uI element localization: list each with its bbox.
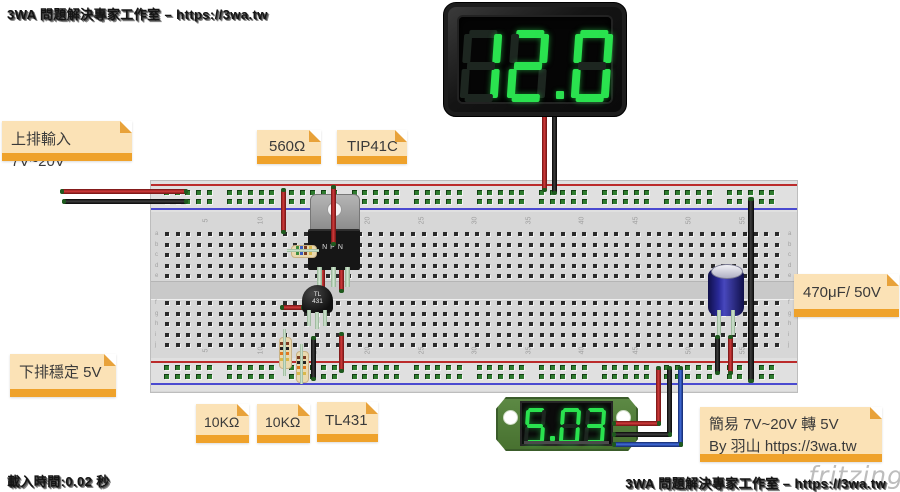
breadboard-hole <box>208 264 212 268</box>
transistor-leg <box>317 267 322 287</box>
segment-b <box>541 410 546 424</box>
breadboard-hole <box>561 253 565 257</box>
breadboard-hole <box>272 243 276 247</box>
breadboard-hole <box>411 343 415 347</box>
breadboard-rail-hole <box>602 365 607 370</box>
breadboard-hole <box>647 301 651 305</box>
breadboard-hole <box>721 243 725 247</box>
segment-f <box>525 410 530 424</box>
breadboard-hole <box>197 343 201 347</box>
column-label: 5 <box>202 349 209 353</box>
breadboard-hole <box>775 322 779 326</box>
breadboard-hole <box>197 264 201 268</box>
breadboard-rail-hole <box>394 190 399 195</box>
breadboard-hole <box>529 333 533 337</box>
breadboard-hole <box>272 232 276 236</box>
breadboard-hole <box>304 333 308 337</box>
breadboard-hole <box>497 253 501 257</box>
breadboard-rail-hole <box>759 199 764 204</box>
breadboard-hole <box>486 232 490 236</box>
breadboard-hole <box>219 301 223 305</box>
breadboard-hole <box>657 253 661 257</box>
breadboard-hole <box>700 274 704 278</box>
breadboard-hole <box>272 333 276 337</box>
breadboard-hole <box>293 333 297 337</box>
breadboard-rail-hole <box>477 365 482 370</box>
breadboard-hole <box>251 243 255 247</box>
breadboard-hole <box>475 253 479 257</box>
breadboard-rail-hole <box>539 199 544 204</box>
breadboard-hole <box>176 253 180 257</box>
breadboard-hole <box>165 312 169 316</box>
breadboard-hole <box>486 274 490 278</box>
note-input-top[interactable]: 上排輸入 7V~20V <box>2 121 132 161</box>
row-label: h <box>155 321 158 327</box>
breadboard-rail-hole <box>560 199 565 204</box>
watermark-top-left: 3WA 問題解決專家工作室 – https://3wa.tw <box>7 4 268 23</box>
breadboard-hole <box>229 301 233 305</box>
breadboard-rail-hole <box>696 190 701 195</box>
breadboard-hole <box>700 333 704 337</box>
breadboard-rail-hole <box>435 190 440 195</box>
breadboard-hole <box>358 322 362 326</box>
breadboard-rail-hole <box>196 374 201 379</box>
breadboard-hole <box>197 322 201 326</box>
breadboard-hole <box>454 264 458 268</box>
breadboard-hole <box>529 274 533 278</box>
breadboard-hole <box>422 253 426 257</box>
breadboard-rail-hole <box>644 365 649 370</box>
wire-input-positive[interactable] <box>60 189 188 194</box>
segment-b <box>539 34 549 63</box>
small-voltmeter-baseline <box>524 441 609 444</box>
breadboard-hole <box>497 301 501 305</box>
breadboard-hole <box>486 264 490 268</box>
breadboard-hole <box>229 253 233 257</box>
tl431[interactable]: TL431 <box>302 285 333 327</box>
breadboard-hole <box>625 274 629 278</box>
breadboard-hole <box>219 253 223 257</box>
breadboard-hole <box>572 333 576 337</box>
wire-vm-black-v[interactable] <box>667 366 672 437</box>
breadboard-hole <box>261 312 265 316</box>
breadboard-rail-hole <box>737 365 742 370</box>
mounting-hole-icon <box>504 411 517 424</box>
breadboard-rail-hole <box>185 374 190 379</box>
breadboard-hole <box>550 333 554 337</box>
resistor-lead <box>283 329 286 376</box>
breadboard-hole <box>540 274 544 278</box>
breadboard-hole <box>197 301 201 305</box>
breadboard-rail-hole <box>248 374 253 379</box>
breadboard-rail-hole <box>269 374 274 379</box>
note-output-bottom[interactable]: 下排穩定 5V <box>10 354 116 397</box>
breadboard-rail-hole <box>623 365 628 370</box>
breadboard-hole <box>186 232 190 236</box>
breadboard-hole <box>764 253 768 257</box>
breadboard-hole <box>186 301 190 305</box>
rail-red-line <box>151 361 797 363</box>
breadboard-hole <box>379 243 383 247</box>
breadboard-hole <box>775 301 779 305</box>
breadboard-rail-hole <box>373 199 378 204</box>
breadboard-hole <box>411 322 415 326</box>
note-author[interactable]: 簡易 7V~20V 轉 5V By 羽山 https://3wa.tw <box>700 407 882 462</box>
breadboard-hole <box>540 264 544 268</box>
breadboard-hole <box>518 322 522 326</box>
breadboard-hole <box>507 274 511 278</box>
breadboard-hole <box>240 274 244 278</box>
breadboard-hole <box>689 312 693 316</box>
breadboard-rail-hole <box>707 374 712 379</box>
breadboard-hole <box>379 274 383 278</box>
breadboard-hole <box>764 343 768 347</box>
breadboard-hole <box>497 333 501 337</box>
breadboard-rail-hole <box>207 190 212 195</box>
wire-vm-red-v[interactable] <box>656 366 661 426</box>
breadboard-rail-hole <box>446 365 451 370</box>
breadboard-hole <box>700 343 704 347</box>
breadboard-rail-hole <box>414 190 419 195</box>
breadboard-hole <box>540 322 544 326</box>
breadboard-hole <box>197 253 201 257</box>
breadboard-hole <box>208 322 212 326</box>
breadboard-hole <box>550 301 554 305</box>
breadboard-hole <box>390 333 394 337</box>
breadboard-rail-hole <box>237 199 242 204</box>
breadboard-hole <box>582 243 586 247</box>
breadboard-hole <box>433 264 437 268</box>
breadboard-hole <box>251 312 255 316</box>
breadboard-rail-hole <box>519 199 524 204</box>
breadboard-hole <box>657 274 661 278</box>
large-voltmeter[interactable] <box>443 2 627 117</box>
breadboard-rail-hole <box>164 374 169 379</box>
breadboard-hole <box>486 312 490 316</box>
breadboard-hole <box>572 232 576 236</box>
digit-0 <box>559 408 582 444</box>
breadboard-hole <box>229 322 233 326</box>
breadboard-hole <box>486 343 490 347</box>
breadboard-hole <box>240 253 244 257</box>
wire-cap-to-rail-black[interactable] <box>715 335 720 375</box>
breadboard-rail-hole <box>207 365 212 370</box>
breadboard-hole <box>411 243 415 247</box>
breadboard-hole <box>582 264 586 268</box>
wire-rail-to-rowA[interactable] <box>281 188 286 234</box>
breadboard-hole <box>229 243 233 247</box>
breadboard-hole <box>186 243 190 247</box>
breadboard-rail-hole <box>685 374 690 379</box>
breadboard-hole <box>507 232 511 236</box>
breadboard-rail-hole <box>175 374 180 379</box>
breadboard-rail-hole <box>321 374 326 379</box>
breadboard-hole <box>465 243 469 247</box>
breadboard-hole <box>582 333 586 337</box>
breadboard-hole <box>486 301 490 305</box>
breadboard-hole <box>390 322 394 326</box>
resistor-560ohm[interactable] <box>287 245 319 256</box>
breadboard-hole <box>625 243 629 247</box>
breadboard-rail-hole <box>185 365 190 370</box>
breadboard-hole <box>529 322 533 326</box>
breadboard-hole <box>251 264 255 268</box>
breadboard-rail-hole <box>602 199 607 204</box>
breadboard-hole <box>208 274 212 278</box>
wire-input-negative[interactable] <box>62 199 188 204</box>
breadboard-rail-hole <box>550 374 555 379</box>
breadboard-rail-hole <box>571 190 576 195</box>
column-label: 50 <box>686 217 693 225</box>
breadboard-hole <box>443 322 447 326</box>
breadboard-hole <box>475 312 479 316</box>
breadboard-hole <box>347 301 351 305</box>
breadboard-hole <box>540 333 544 337</box>
breadboard-hole <box>679 333 683 337</box>
breadboard-hole <box>251 232 255 236</box>
breadboard-hole <box>176 243 180 247</box>
breadboard-hole <box>400 264 404 268</box>
breadboard-rail-hole <box>259 374 264 379</box>
breadboard-hole <box>454 333 458 337</box>
breadboard-hole <box>636 274 640 278</box>
breadboard-hole <box>604 232 608 236</box>
breadboard-hole <box>400 243 404 247</box>
breadboard-rail-hole <box>207 374 212 379</box>
resistor-10k-right[interactable] <box>295 344 307 384</box>
note-tl431[interactable]: TL431 <box>317 402 378 442</box>
wire-display-positive[interactable] <box>542 112 547 192</box>
breadboard-hole <box>433 243 437 247</box>
wire-vm-blue-v[interactable] <box>678 366 683 447</box>
breadboard-rail-hole <box>477 374 482 379</box>
breadboard-hole <box>400 301 404 305</box>
breadboard-hole <box>507 253 511 257</box>
segment-g <box>514 62 543 70</box>
breadboard-hole <box>732 243 736 247</box>
breadboard-hole <box>625 312 629 316</box>
breadboard-hole <box>657 243 661 247</box>
breadboard-rail-hole <box>259 190 264 195</box>
breadboard-hole <box>475 232 479 236</box>
breadboard-hole <box>604 343 608 347</box>
breadboard-hole <box>625 301 629 305</box>
breadboard-rail-hole <box>498 365 503 370</box>
row-label: i <box>788 332 789 338</box>
breadboard-rail-hole <box>602 374 607 379</box>
breadboard-hole <box>668 333 672 337</box>
breadboard-hole <box>754 232 758 236</box>
breadboard-hole <box>197 243 201 247</box>
breadboard-hole <box>486 243 490 247</box>
column-label: 50 <box>686 347 693 355</box>
breadboard-rail-hole <box>498 190 503 195</box>
breadboard-hole <box>411 264 415 268</box>
breadboard-hole <box>668 343 672 347</box>
breadboard-hole <box>390 301 394 305</box>
resistor-10k-left[interactable] <box>278 329 290 376</box>
column-label: 10 <box>258 347 265 355</box>
breadboard-hole <box>657 333 661 337</box>
wire-display-negative[interactable] <box>552 112 557 195</box>
breadboard-hole <box>454 232 458 236</box>
column-label: 40 <box>579 347 586 355</box>
row-label: f <box>788 300 790 306</box>
breadboard-rail-hole <box>696 199 701 204</box>
breadboard-hole <box>754 322 758 326</box>
breadboard-hole <box>550 232 554 236</box>
breadboard-hole <box>368 243 372 247</box>
breadboard-hole <box>326 333 330 337</box>
breadboard-hole <box>433 274 437 278</box>
column-label: 40 <box>579 217 586 225</box>
breadboard-hole <box>368 301 372 305</box>
wire-rail-to-transistor[interactable] <box>331 185 336 246</box>
note-tip41c[interactable]: TIP41C <box>337 130 407 164</box>
breadboard-hole <box>582 301 586 305</box>
breadboard-hole <box>219 322 223 326</box>
breadboard-hole <box>433 301 437 305</box>
note-10k-left[interactable]: 10KΩ <box>196 404 249 443</box>
column-label: 30 <box>472 347 479 355</box>
breadboard-rail-hole <box>519 190 524 195</box>
breadboard-hole <box>272 301 276 305</box>
breadboard-rail-hole <box>425 199 430 204</box>
wire-feedback-black[interactable] <box>311 336 316 381</box>
breadboard-rail-hole <box>414 199 419 204</box>
breadboard-hole <box>700 322 704 326</box>
breadboard-hole <box>475 301 479 305</box>
breadboard-hole <box>593 274 597 278</box>
breadboard-hole <box>293 264 297 268</box>
breadboard-hole <box>336 301 340 305</box>
wire-cap-to-rail-red[interactable] <box>728 335 733 375</box>
segment-b <box>492 34 502 63</box>
breadboard-hole <box>721 343 725 347</box>
breadboard-hole <box>657 264 661 268</box>
wire-vm-black-h[interactable] <box>612 432 672 437</box>
breadboard-hole <box>636 301 640 305</box>
breadboard-hole <box>518 343 522 347</box>
breadboard-hole <box>379 312 383 316</box>
breadboard-hole <box>176 312 180 316</box>
row-label: i <box>155 332 156 338</box>
breadboard-rail-hole <box>707 199 712 204</box>
breadboard-hole <box>497 312 501 316</box>
breadboard-hole <box>411 253 415 257</box>
breadboard-hole <box>593 333 597 337</box>
note-10k-right[interactable]: 10KΩ <box>257 404 310 443</box>
breadboard-hole <box>614 243 618 247</box>
column-label: 35 <box>525 347 532 355</box>
breadboard-rail-hole <box>644 199 649 204</box>
breadboard-hole <box>176 274 180 278</box>
breadboard-hole <box>219 243 223 247</box>
breadboard-hole <box>689 253 693 257</box>
breadboard-rail-hole <box>582 374 587 379</box>
breadboard-hole <box>614 301 618 305</box>
breadboard-hole <box>165 264 169 268</box>
breadboard-hole <box>636 253 640 257</box>
segment-b <box>601 410 606 424</box>
breadboard-rail-hole <box>727 190 732 195</box>
rail-blue-line <box>151 208 797 210</box>
breadboard-hole <box>604 333 608 337</box>
decimal-point <box>556 91 564 99</box>
segment-d <box>575 94 604 102</box>
breadboard-hole <box>454 322 458 326</box>
breadboard-hole <box>689 301 693 305</box>
breadboard-rail-hole <box>457 190 462 195</box>
breadboard-hole <box>775 243 779 247</box>
wire-ground-rail-link[interactable] <box>748 197 754 383</box>
breadboard-hole <box>400 312 404 316</box>
wire-vm-blue-h[interactable] <box>612 442 683 447</box>
wire-vm-red-h[interactable] <box>612 421 661 426</box>
breadboard-hole <box>657 322 661 326</box>
breadboard[interactable]: 5510101515202025253030353540404545505055… <box>150 180 798 393</box>
breadboard-rail-hole <box>435 374 440 379</box>
note-capacitor[interactable]: 470μF/ 50V <box>794 274 899 317</box>
breadboard-hole <box>176 333 180 337</box>
breadboard-hole <box>433 343 437 347</box>
breadboard-hole <box>390 274 394 278</box>
breadboard-hole <box>465 312 469 316</box>
breadboard-hole <box>614 333 618 337</box>
breadboard-hole <box>261 232 265 236</box>
wire-to-bottom-rail[interactable] <box>339 332 344 373</box>
breadboard-rail-hole <box>612 365 617 370</box>
row-label: d <box>788 263 791 269</box>
breadboard-rail-hole <box>623 199 628 204</box>
breadboard-hole <box>475 264 479 268</box>
breadboard-hole <box>465 253 469 257</box>
breadboard-rail-hole <box>446 190 451 195</box>
breadboard-hole <box>165 343 169 347</box>
breadboard-hole <box>261 333 265 337</box>
breadboard-hole <box>775 312 779 316</box>
breadboard-hole <box>754 253 758 257</box>
breadboard-hole <box>465 274 469 278</box>
breadboard-hole <box>197 312 201 316</box>
breadboard-hole <box>668 232 672 236</box>
breadboard-hole <box>625 343 629 347</box>
segment-f <box>573 34 583 63</box>
breadboard-hole <box>465 232 469 236</box>
breadboard-hole <box>379 333 383 337</box>
breadboard-rail-hole <box>737 190 742 195</box>
note-560ohm[interactable]: 560Ω <box>257 130 321 164</box>
breadboard-hole <box>176 301 180 305</box>
breadboard-hole <box>679 264 683 268</box>
transistor-leg <box>345 267 350 287</box>
breadboard-rail-hole <box>414 365 419 370</box>
breadboard-hole <box>379 232 383 236</box>
segment-f <box>585 410 590 424</box>
breadboard-hole <box>400 232 404 236</box>
capacitor-470uf[interactable] <box>708 264 744 335</box>
breadboard-rail-hole <box>560 365 565 370</box>
breadboard-hole <box>283 312 287 316</box>
breadboard-rail-hole <box>164 365 169 370</box>
breadboard-rail-hole <box>571 199 576 204</box>
row-label: a <box>788 231 791 237</box>
row-label: b <box>155 242 158 248</box>
breadboard-hole <box>197 333 201 337</box>
breadboard-rail-hole <box>623 190 628 195</box>
segment-g <box>527 424 542 428</box>
breadboard-rail-hole <box>707 365 712 370</box>
